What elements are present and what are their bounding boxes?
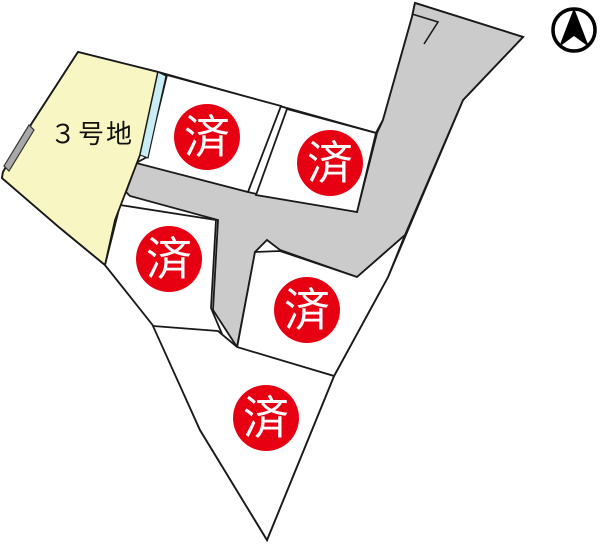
sold-marker-label: 済 xyxy=(243,392,289,444)
sold-marker-label: 済 xyxy=(307,137,353,189)
sold-marker-5: 済 xyxy=(233,385,299,451)
sold-marker-1: 済 xyxy=(174,104,240,170)
lot-3-label: ３号地 xyxy=(50,119,134,149)
lot-map-svg: ３号地 済 済 済 済 済 xyxy=(0,0,600,552)
sold-marker-3: 済 xyxy=(136,226,202,292)
lot-map-canvas: ３号地 済 済 済 済 済 xyxy=(0,0,600,552)
sold-marker-2: 済 xyxy=(297,130,363,196)
sold-marker-label: 済 xyxy=(284,284,330,336)
sold-marker-4: 済 xyxy=(274,277,340,343)
sold-marker-label: 済 xyxy=(184,111,230,163)
sold-marker-label: 済 xyxy=(146,233,192,285)
north-compass xyxy=(553,8,595,51)
